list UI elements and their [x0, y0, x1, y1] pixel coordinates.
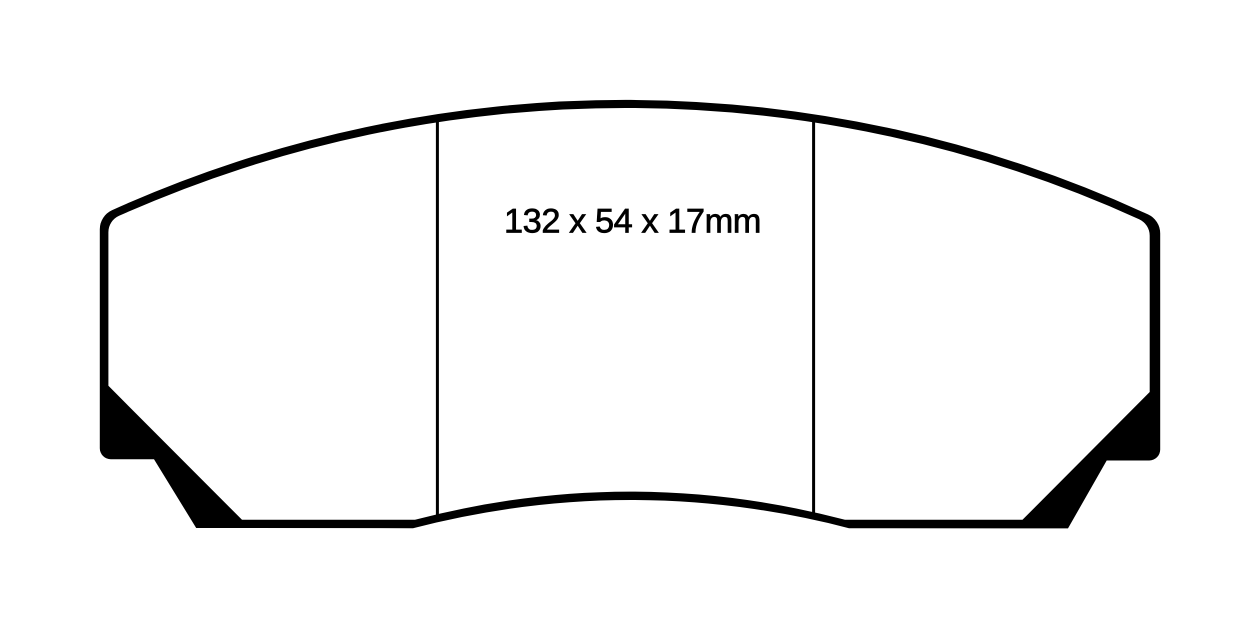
- svg-text:132 x 54 x 17mm: 132 x 54 x 17mm: [504, 202, 761, 240]
